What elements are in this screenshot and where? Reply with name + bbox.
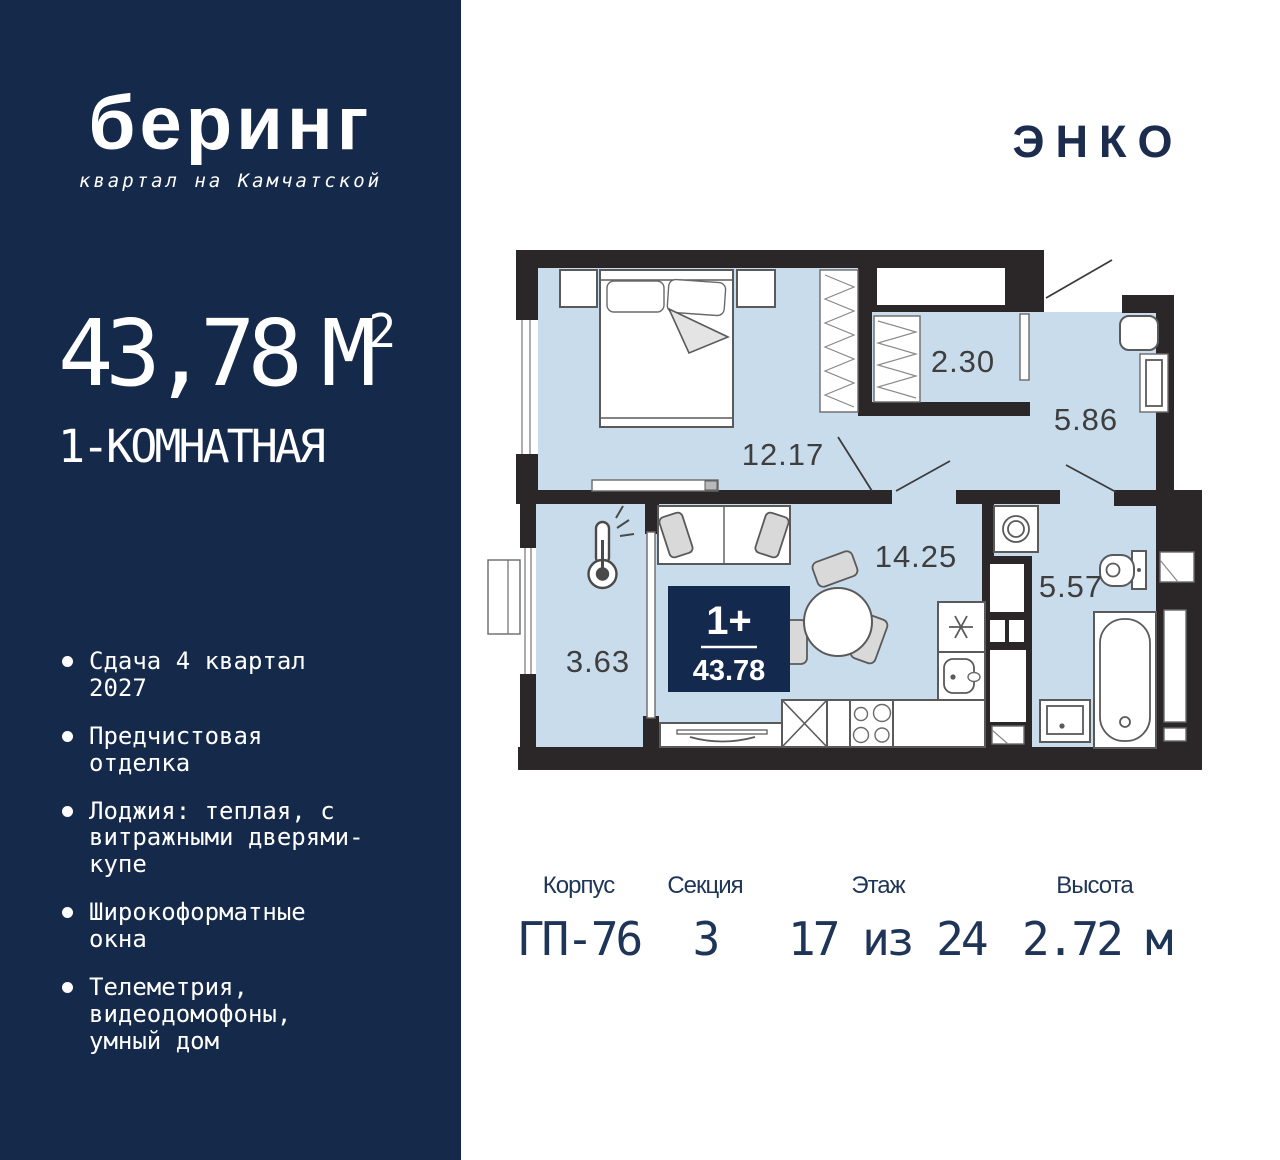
tv-console-icon [592,480,718,491]
feature-item: Предчистовая отделка [62,723,372,777]
badge-area: 43.78 [693,655,766,687]
detail-korpus: Корпус ГП-76 [516,872,641,966]
brand-logo-text: беринг [0,86,461,162]
area-unit: М [321,300,368,407]
tv-cabinet-icon [660,723,782,747]
vent-shaft-icon [1160,552,1194,582]
loggia-window-icon [488,548,536,674]
washing-machine-icon [994,506,1038,552]
developer-logo: ЭНКО [988,116,1208,168]
bathtub-icon [1094,612,1156,748]
shaft-niche [1164,728,1186,741]
toilet-icon [1100,551,1146,589]
feature-item: Широкоформатные окна [62,899,372,953]
wardrobe-icon [820,270,858,412]
room-label-hallway: 5.86 [1054,402,1118,437]
detail-vysota: Высота 2.72 м [1022,872,1167,966]
room-label-bedroom: 12.17 [742,437,825,472]
vent-shaft-icon [992,726,1024,744]
kitchen-counter-icon [782,700,985,747]
nightstand-icon [560,270,597,307]
brand-logo-subtitle: квартал на Камчатской [0,170,461,192]
apartment-badge: 1+ 43.78 [668,586,790,692]
bullet-icon [62,656,73,667]
badge-rooms: 1+ [706,599,752,643]
apartment-area: 43,78М2 [58,308,396,400]
wall-niche [877,268,1005,305]
detail-etazh: Этаж 17 из 24 [788,872,968,966]
sidebar: беринг квартал на Камчатской 43,78М2 1-К… [0,0,461,1160]
detail-sektsiya: Секция 3 [650,872,760,966]
bullet-icon [62,806,73,817]
bullet-icon [62,982,73,993]
room-label-loggia: 3.63 [566,644,630,679]
apartment-type: 1-КОМНАТНАЯ [58,420,323,473]
bedroom-window-icon [516,320,538,454]
apartment-flyer: беринг квартал на Камчатской 43,78М2 1-К… [0,0,1280,1160]
area-value: 43,78 [58,300,295,407]
entrance-door-swing [1046,260,1112,298]
hall-sink-icon [1120,316,1158,350]
bullet-icon [62,907,73,918]
area-superscript: 2 [368,304,396,358]
closet-door-icon [1020,314,1029,380]
cooktop-icon [850,700,893,747]
nightstand-icon [737,270,775,307]
pillow-icon [667,279,726,316]
wardrobe-icon [874,316,920,402]
shaft-niche [1164,610,1186,722]
feature-list: Сдача 4 квартал 2027 Предчистовая отделк… [62,648,372,1076]
kitchen-sink-icon [938,602,985,700]
brand-logo: беринг квартал на Камчатской [0,86,461,192]
floor-plan: 12.17 2.30 5.86 [485,245,1210,780]
bullet-icon [62,731,73,742]
hall-cabinet-icon [1140,354,1168,412]
pillow-icon [607,281,664,312]
glass-door-icon [647,532,655,718]
room-label-wardrobe: 2.30 [931,344,995,379]
balcony-box-icon [488,560,520,634]
bathroom-sink-icon [1040,700,1090,742]
bed-icon [600,270,733,427]
feature-item: Лоджия: теплая, с витражными дверями-куп… [62,798,372,879]
room-label-bathroom: 5.57 [1039,569,1103,604]
feature-item: Сдача 4 квартал 2027 [62,648,372,702]
room-label-kitchen-living: 14.25 [875,539,958,574]
feature-item: Телеметрия, видеодомофоны, умный дом [62,974,372,1055]
sofa-icon [658,506,790,564]
